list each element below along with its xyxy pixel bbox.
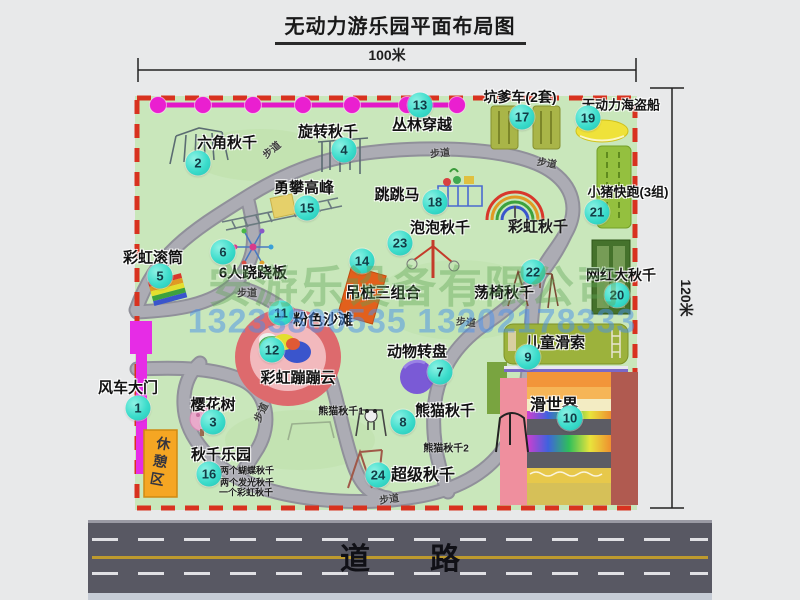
pink-beach-shape <box>235 308 341 406</box>
road-shoulder <box>88 593 712 600</box>
piggy-run-shape <box>597 146 631 228</box>
width-dimension-label: 100米 <box>368 45 405 65</box>
animal-carousel-shape <box>400 360 434 394</box>
slide-world-shape <box>500 366 638 505</box>
park-layout-screenshot: 无动力游乐园平面布局图 <box>0 0 800 600</box>
road-label: 道 路 <box>88 534 712 578</box>
height-dimension-label: 120米 <box>676 279 696 316</box>
page-title-text: 无动力游乐园平面布局图 <box>275 10 526 45</box>
road: 道 路 <box>88 520 712 593</box>
page-title: 无动力游乐园平面布局图 <box>0 10 800 45</box>
pirate-ship-shape <box>576 120 628 142</box>
big-swing-shape <box>592 240 630 314</box>
